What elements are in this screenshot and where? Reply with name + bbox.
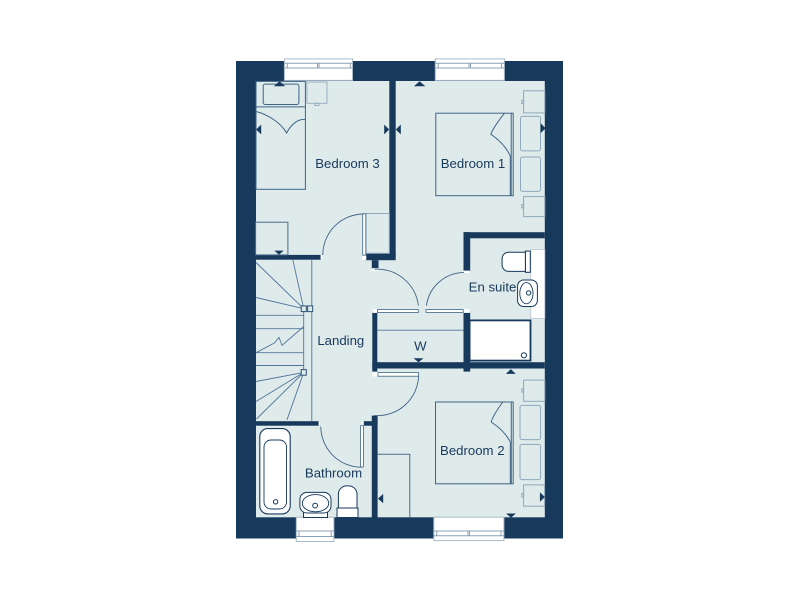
svg-text:W: W [414, 339, 427, 354]
svg-text:Bathroom: Bathroom [305, 466, 362, 481]
svg-text:Bedroom 1: Bedroom 1 [441, 156, 506, 171]
svg-text:Bedroom 3: Bedroom 3 [315, 156, 380, 171]
svg-text:Landing: Landing [317, 333, 364, 348]
svg-text:En suite: En suite [469, 280, 517, 295]
svg-text:Bedroom 2: Bedroom 2 [440, 443, 505, 458]
